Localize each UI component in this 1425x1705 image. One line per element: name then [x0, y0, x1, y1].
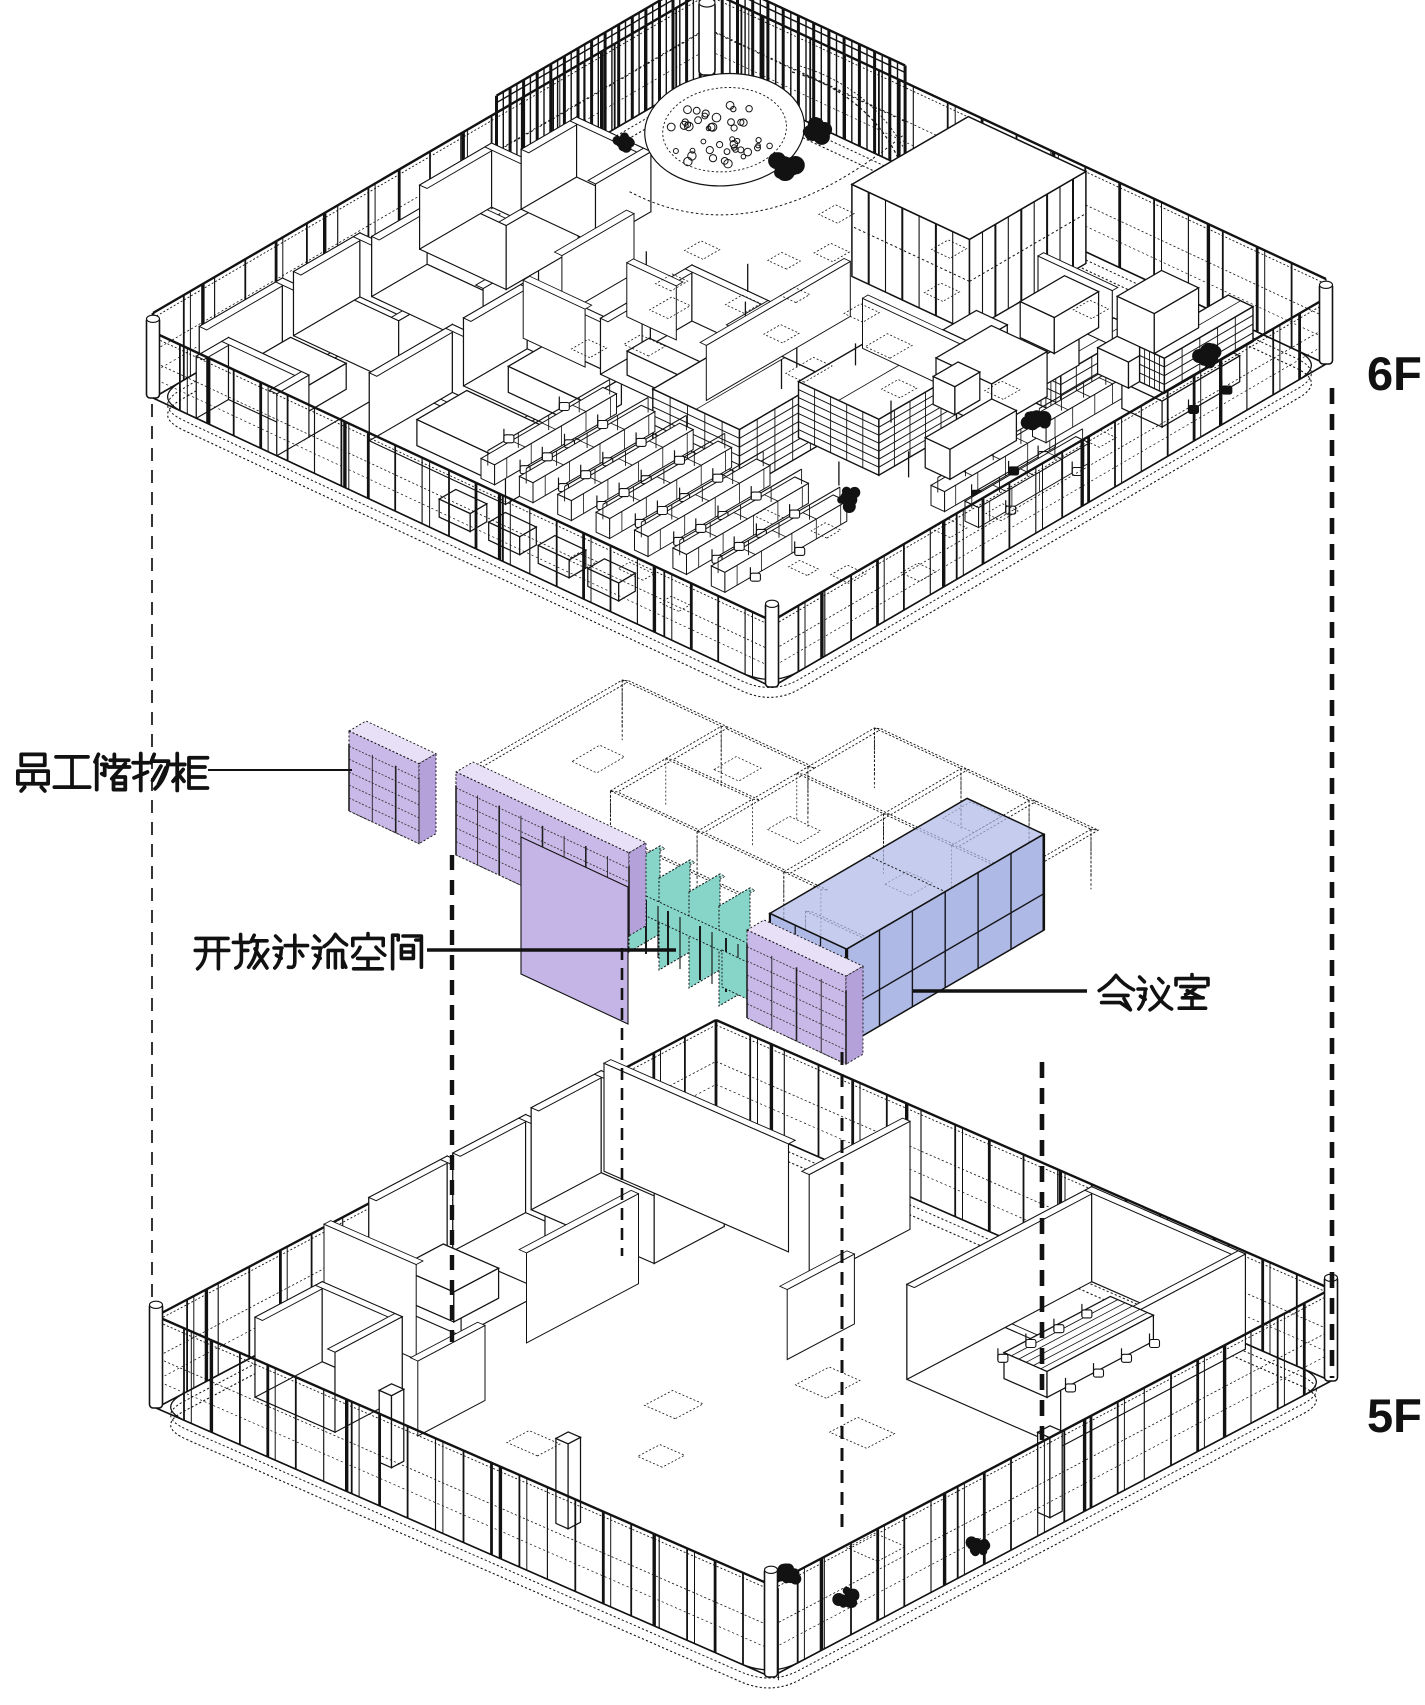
- svg-text:5F: 5F: [1367, 1389, 1422, 1442]
- svg-text:6F: 6F: [1367, 347, 1422, 400]
